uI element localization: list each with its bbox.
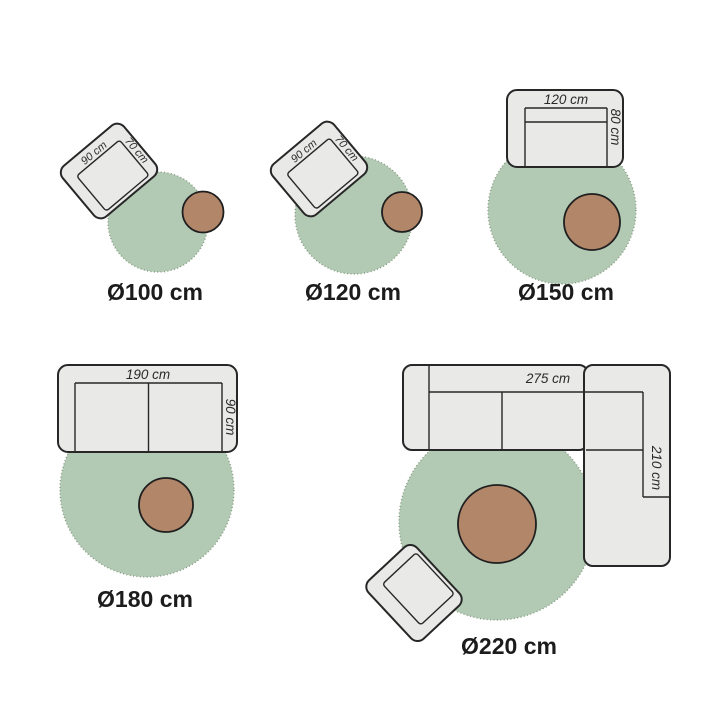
width-label: 120 cm [544, 92, 588, 107]
two-seat-sofa: 120 cm 80 cm [507, 90, 623, 167]
rug-size-label: Ø120 cm [305, 279, 401, 305]
rug-size-guide-page: 90 cm 70 cm Ø100 cm 90 cm 70 cm Ø120 cm … [0, 0, 720, 720]
width-label: 275 cm [525, 371, 570, 386]
side-table-circle [458, 485, 536, 563]
depth-label: 90 cm [223, 399, 238, 436]
depth-label: 80 cm [608, 109, 623, 146]
rug-size-label: Ø150 cm [518, 279, 614, 305]
rug-size-label: Ø220 cm [461, 633, 557, 659]
rug-size-label: Ø100 cm [107, 279, 203, 305]
width-label: 190 cm [126, 367, 170, 382]
side-table-circle [183, 192, 224, 233]
side-table-circle [564, 194, 620, 250]
two-seat-sofa: 190 cm 90 cm [58, 365, 238, 452]
rug-size-label: Ø180 cm [97, 586, 193, 612]
depth-label: 210 cm [649, 445, 664, 490]
rug-size-guide-diagram: 90 cm 70 cm Ø100 cm 90 cm 70 cm Ø120 cm … [0, 0, 720, 720]
side-table-circle [382, 192, 422, 232]
side-table-circle [139, 478, 193, 532]
